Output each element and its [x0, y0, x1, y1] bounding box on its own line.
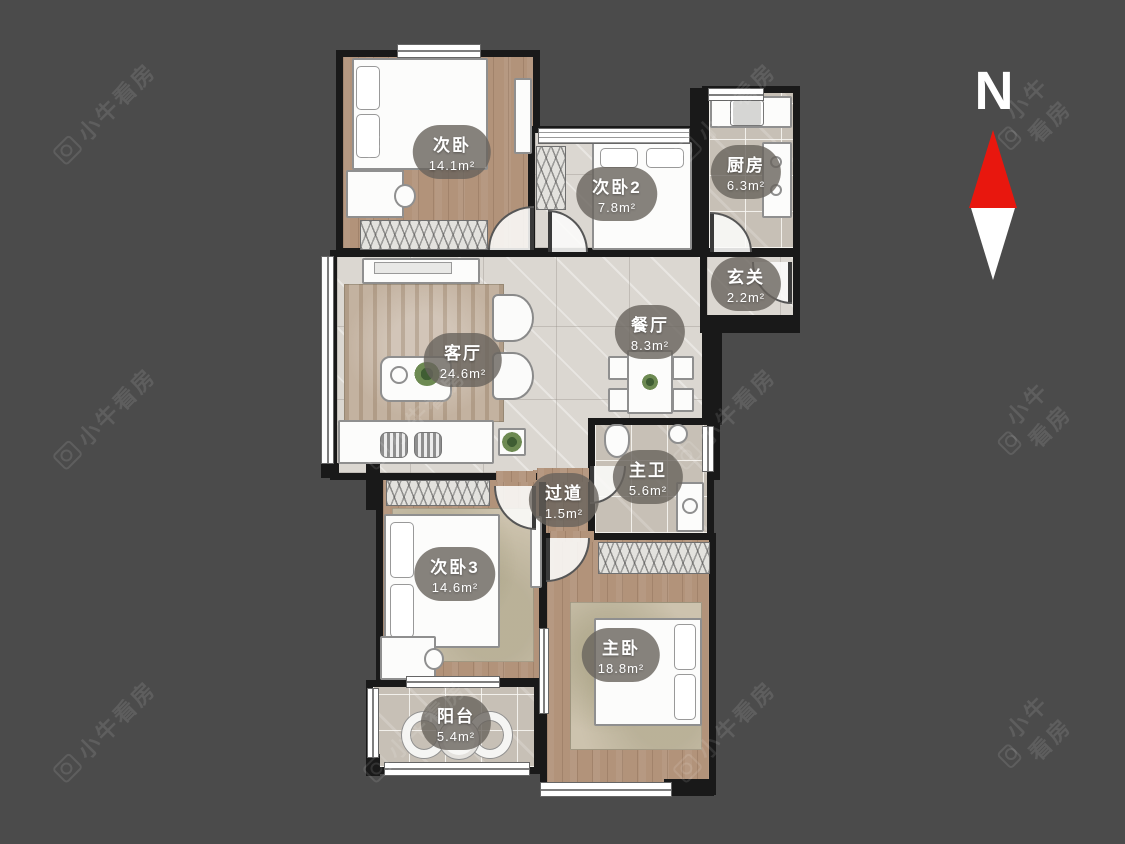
- plant: [642, 374, 658, 390]
- room-area: 7.8m²: [592, 200, 641, 215]
- pillow: [600, 148, 638, 168]
- wardrobe: [536, 146, 566, 210]
- floorplan-page: 次卧 14.1m² 次卧2 7.8m² 厨房 6.3m² 玄关 2.2m² 客厅…: [0, 0, 1125, 844]
- room-area: 1.5m²: [545, 506, 583, 521]
- room-label-bedroom3: 次卧3 14.6m²: [414, 547, 495, 601]
- window: [540, 782, 672, 797]
- tv-screen: [374, 262, 452, 274]
- room-area: 14.6m²: [430, 580, 479, 595]
- compass-north-label: N: [968, 60, 1020, 122]
- window: [384, 762, 530, 776]
- sofa-pillow: [414, 432, 442, 458]
- wall-stub: [702, 317, 722, 425]
- wardrobe: [360, 220, 488, 250]
- room-area: 14.1m²: [429, 158, 475, 173]
- room-label-master-bath: 主卫 5.6m²: [613, 450, 683, 504]
- room-label-living: 客厅 24.6m²: [424, 333, 502, 387]
- wall-stub: [366, 463, 380, 510]
- kitchen-sink: [730, 100, 764, 126]
- wardrobe: [386, 480, 490, 506]
- watermark-logo-icon: [51, 752, 83, 784]
- window: [539, 628, 549, 714]
- watermark-text: 小牛看房: [69, 672, 162, 765]
- watermark-logo-icon: [996, 429, 1023, 456]
- dining-chair: [672, 356, 694, 380]
- room-area: 24.6m²: [440, 366, 486, 381]
- watermark-logo-icon: [996, 742, 1023, 769]
- shower-head: [668, 424, 688, 444]
- watermark: 小牛看房: [47, 672, 162, 787]
- compass-south-arrow: [971, 208, 1015, 280]
- pillow: [356, 114, 380, 158]
- watermark-text: 小牛看房: [998, 363, 1090, 455]
- room-name: 客厅: [440, 339, 486, 364]
- room-label-bedroom1: 次卧 14.1m²: [413, 125, 491, 179]
- room-label-entry: 玄关 2.2m²: [711, 257, 781, 311]
- room-name: 次卧3: [430, 553, 479, 578]
- room-label-master-bedroom: 主卧 18.8m²: [582, 628, 660, 682]
- window: [708, 88, 764, 101]
- desk-chair: [424, 648, 444, 670]
- room-area: 2.2m²: [727, 290, 765, 305]
- watermark: 小牛看房: [981, 676, 1090, 785]
- window: [321, 256, 334, 464]
- watermark-text: 小牛看房: [69, 359, 162, 452]
- room-name: 餐厅: [631, 311, 669, 336]
- room-label-hallway: 过道 1.5m²: [529, 473, 599, 527]
- room-label-balcony: 阳台 5.4m²: [421, 696, 491, 750]
- room-name: 阳台: [437, 702, 475, 727]
- window: [367, 688, 379, 758]
- wall-stub: [321, 463, 339, 478]
- watermark: 小牛看房: [981, 363, 1090, 472]
- room-name: 过道: [545, 479, 583, 504]
- armchair: [492, 294, 534, 342]
- watermark-logo-icon: [51, 134, 83, 166]
- pillow: [390, 522, 414, 578]
- watermark: 小牛看房: [47, 359, 162, 474]
- watermark-logo-icon: [51, 439, 83, 471]
- plant: [502, 432, 522, 452]
- room-label-dining: 餐厅 8.3m²: [615, 305, 685, 359]
- pillow: [356, 66, 380, 110]
- room-name: 次卧2: [592, 173, 641, 198]
- room-area: 5.6m²: [629, 483, 667, 498]
- room-area: 18.8m²: [598, 661, 644, 676]
- doorway-opening: [496, 471, 536, 482]
- room-name: 主卧: [598, 634, 644, 659]
- watermark-text: 小牛看房: [998, 676, 1090, 768]
- watermark: 小牛看房: [47, 54, 162, 169]
- wardrobe: [598, 542, 710, 574]
- watermark-text: 小牛看房: [69, 54, 162, 147]
- room-area: 5.4m²: [437, 729, 475, 744]
- room-name: 次卧: [429, 131, 475, 156]
- sofa-pillow: [380, 432, 408, 458]
- pillow: [646, 148, 684, 168]
- room-name: 玄关: [727, 263, 765, 288]
- pillow: [390, 584, 414, 638]
- window: [406, 676, 500, 688]
- window: [538, 128, 690, 144]
- pillow: [674, 624, 696, 670]
- dresser: [514, 78, 532, 154]
- window: [702, 426, 714, 472]
- room-label-bedroom2: 次卧2 7.8m²: [576, 167, 657, 221]
- room-label-kitchen: 厨房 6.3m²: [711, 145, 781, 199]
- desk-chair: [394, 184, 416, 208]
- room-name: 厨房: [727, 151, 765, 176]
- room-name: 主卫: [629, 456, 667, 481]
- tray: [390, 366, 408, 384]
- room-area: 8.3m²: [631, 338, 669, 353]
- basin: [682, 498, 698, 514]
- wall-stub: [690, 88, 706, 252]
- window: [397, 44, 481, 58]
- compass-north-arrow: [969, 130, 1017, 208]
- pillow: [674, 674, 696, 720]
- dining-chair: [672, 388, 694, 412]
- room-area: 6.3m²: [727, 178, 765, 193]
